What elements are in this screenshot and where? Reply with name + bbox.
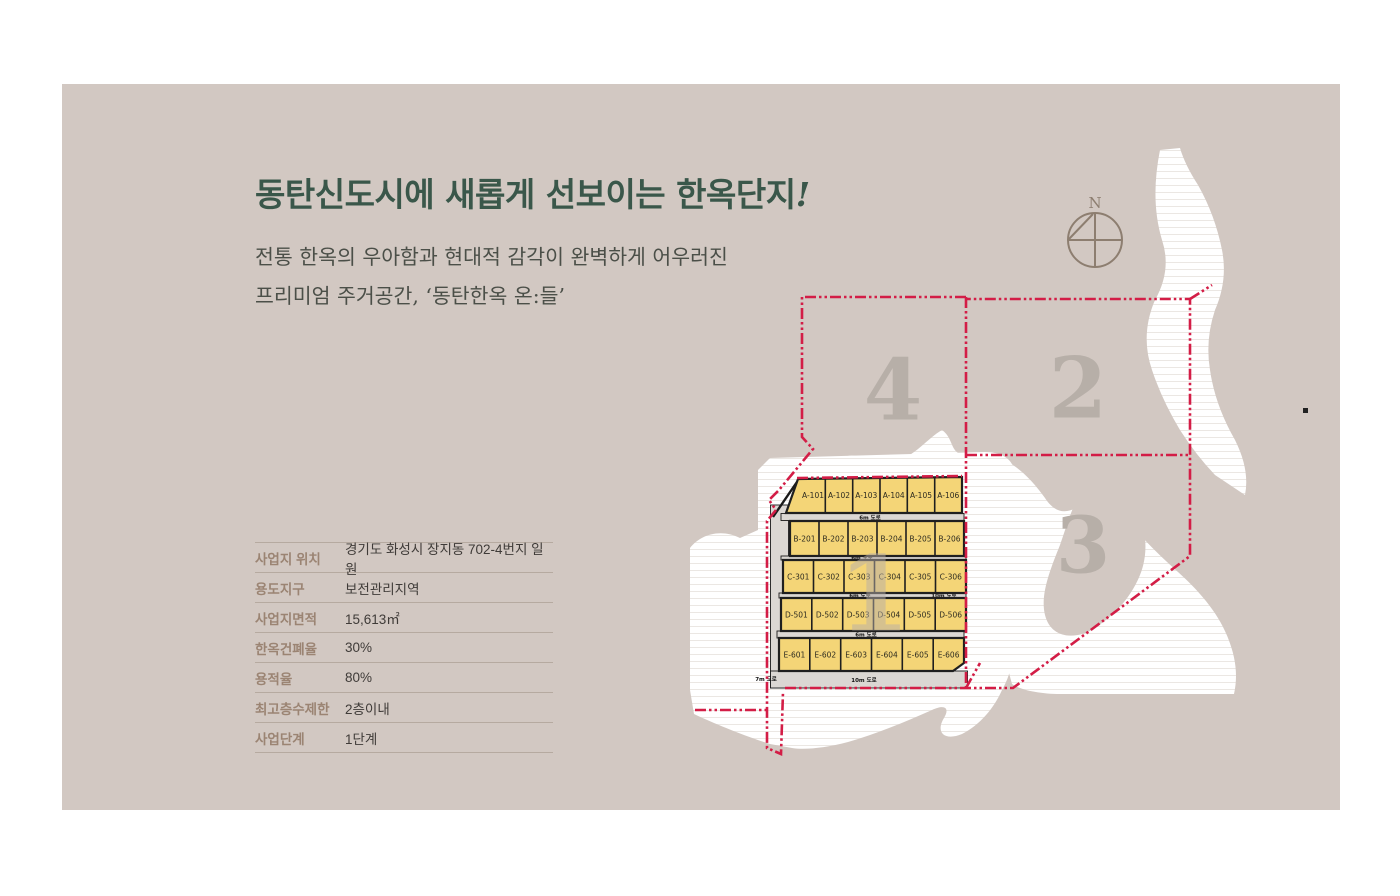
lot-label: A-105	[910, 491, 932, 500]
lot-label: D-505	[908, 611, 931, 620]
lot-label: E-602	[814, 651, 836, 660]
lot-label: C-301	[787, 573, 809, 582]
lot-label: D-501	[785, 611, 808, 620]
zone-label-2: 2	[1049, 339, 1107, 438]
lot-label: A-101	[802, 491, 824, 500]
compass-icon	[1068, 213, 1122, 267]
lot-label: A-104	[883, 491, 905, 500]
lot-block-a: A-101 A-102 A-103 A-104 A-105 A-106	[786, 477, 962, 513]
lot-label: E-601	[784, 651, 806, 660]
lot-label: A-103	[855, 491, 877, 500]
lot-label: B-205	[909, 535, 931, 544]
zone-label-1: 1	[838, 533, 910, 656]
lot-label: E-605	[907, 651, 929, 660]
map-dot	[1303, 408, 1308, 413]
page: 동탄신도시에 새롭게 선보이는 한옥단지! 전통 한옥의 우아함과 현대적 감각…	[0, 0, 1400, 896]
zone-label-3: 3	[1056, 501, 1110, 592]
lot-label: C-306	[940, 573, 962, 582]
lot-label: B-201	[793, 535, 815, 544]
lot-label: D-506	[939, 611, 962, 620]
lot-label: A-102	[828, 491, 850, 500]
zone-label-4: 4	[864, 341, 922, 440]
site-map: 4 2 3 6m 도로 6m 도로 6m 도로 10m 도로 6m 도로 7m …	[0, 0, 1400, 896]
lot-label: D-502	[816, 611, 839, 620]
lot-label: E-606	[938, 651, 960, 660]
road-label: 10m 도로	[851, 677, 876, 684]
north-label: N	[1088, 194, 1101, 212]
terrain-blob-northeast	[1147, 148, 1247, 495]
lot-label: C-302	[818, 573, 840, 582]
lot-label: C-305	[909, 573, 931, 582]
lot-label: A-106	[937, 491, 959, 500]
lot-label: B-206	[938, 535, 960, 544]
